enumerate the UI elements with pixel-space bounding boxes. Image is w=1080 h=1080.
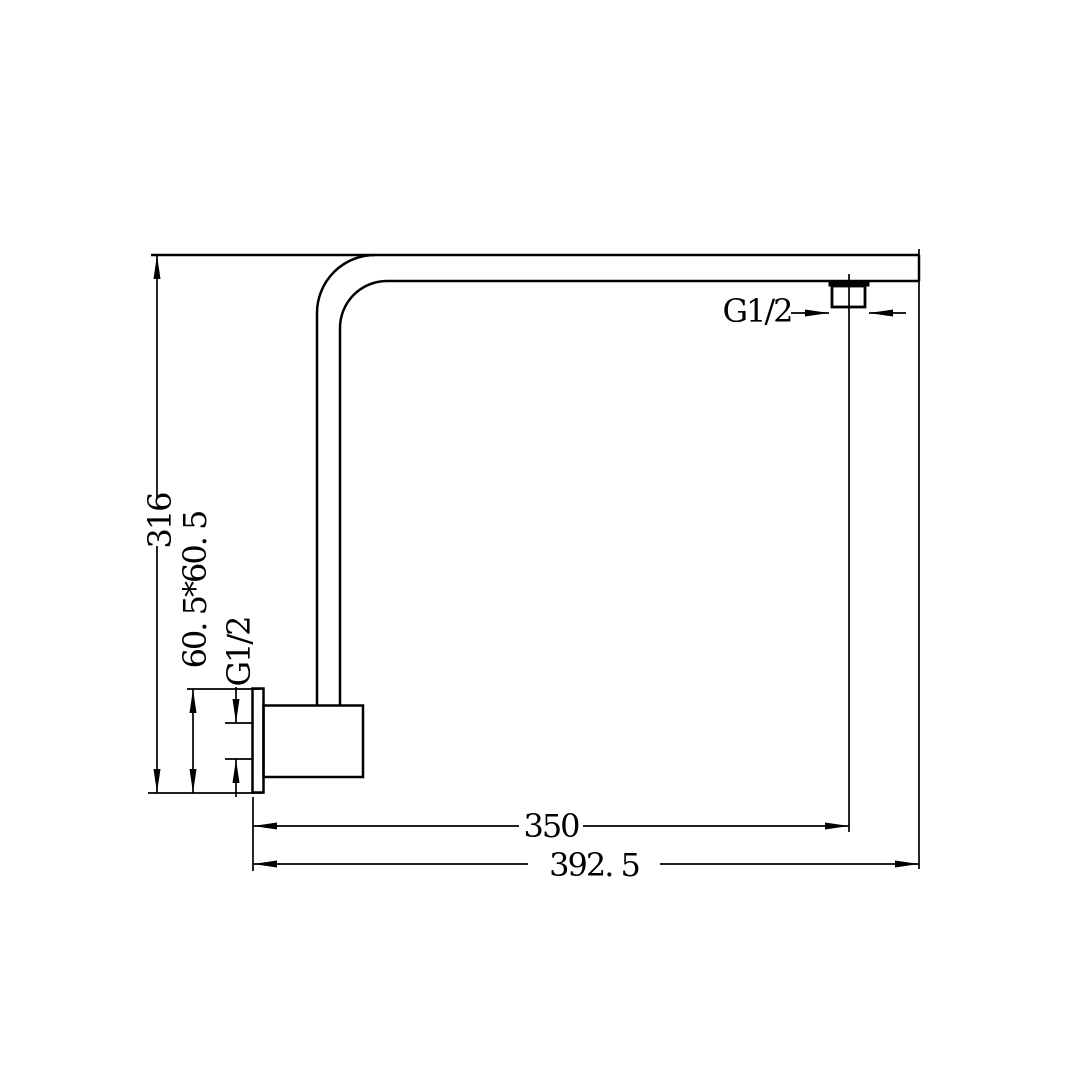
dim-350-label: 350 <box>523 807 579 845</box>
dim-overall-reach: 392. 5 <box>253 249 919 884</box>
dim-plate-label: 60. 5*60. 5 <box>176 512 214 669</box>
dim-inlet-arrow-down <box>233 699 240 723</box>
shower-arm-profile <box>151 255 919 793</box>
dimensions: 316 60. 5*60. 5 G1/2 <box>141 249 919 884</box>
dim-392-arrow-right <box>895 861 919 868</box>
dim-392-label: 392. 5 <box>549 846 639 884</box>
dim-316-label: 316 <box>141 493 179 549</box>
dim-inlet-arrow-up <box>233 759 240 783</box>
dim-350-arrow-right <box>825 823 849 830</box>
dim-outlet-arrow-right <box>805 310 829 317</box>
dim-plate-arrow-up <box>190 689 197 713</box>
dim-inlet-stubs <box>225 723 252 759</box>
arm-bend-inner <box>340 281 387 705</box>
dim-350-arrow-left <box>253 823 277 830</box>
arm-bend-outer <box>317 255 375 705</box>
shower-arm-technical-drawing: 316 60. 5*60. 5 G1/2 <box>0 0 1080 1080</box>
mounting-block <box>264 706 364 778</box>
dim-316-arrow-down <box>154 769 161 793</box>
dim-outlet-arrow-left <box>869 310 893 317</box>
dim-plate-arrow-down <box>190 769 197 793</box>
dim-outlet-label: G1/2 <box>722 292 791 330</box>
dim-inlet-label: G1/2 <box>220 617 258 686</box>
dim-outlet-thread: G1/2 <box>722 274 906 832</box>
dim-316-arrow-up <box>154 255 161 279</box>
drawing-canvas: 316 60. 5*60. 5 G1/2 <box>0 0 1080 1080</box>
dim-392-arrow-left <box>253 861 277 868</box>
wall-plate <box>253 689 264 793</box>
dim-overall-height: 316 <box>141 255 179 793</box>
